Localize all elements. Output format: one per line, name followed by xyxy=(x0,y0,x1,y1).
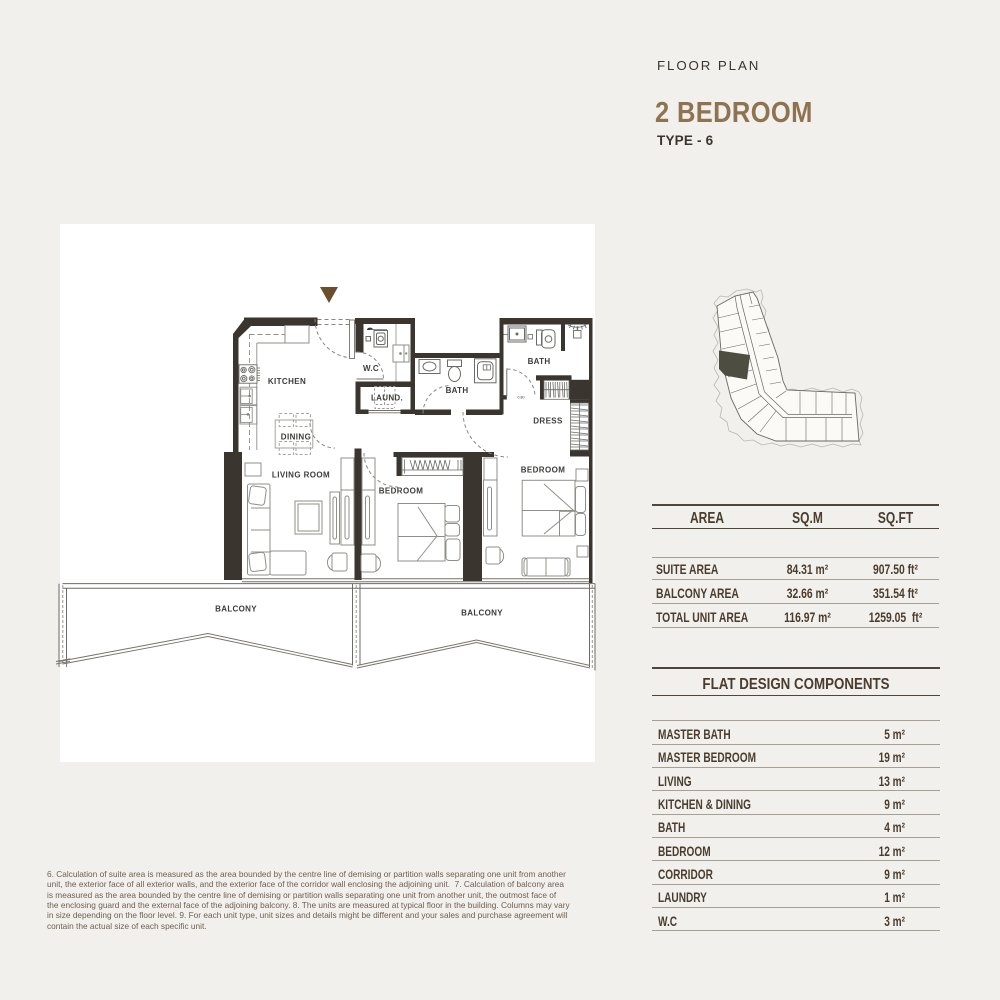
svg-text:BALCONY: BALCONY xyxy=(461,609,503,618)
svg-text:W.C: W.C xyxy=(363,364,379,373)
svg-text:LAUND.: LAUND. xyxy=(371,394,403,403)
svg-text:LIVING ROOM: LIVING ROOM xyxy=(272,471,330,480)
svg-text:BATH: BATH xyxy=(528,357,551,366)
svg-text:0.80: 0.80 xyxy=(518,396,525,400)
svg-text:BATH: BATH xyxy=(446,386,469,395)
svg-text:BEDROOM: BEDROOM xyxy=(379,487,424,496)
svg-text:KITCHEN: KITCHEN xyxy=(268,377,306,386)
svg-text:BEDROOM: BEDROOM xyxy=(521,466,566,475)
svg-text:BALCONY: BALCONY xyxy=(215,605,257,614)
svg-text:DRESS: DRESS xyxy=(533,417,563,426)
svg-text:DINING: DINING xyxy=(281,433,311,442)
